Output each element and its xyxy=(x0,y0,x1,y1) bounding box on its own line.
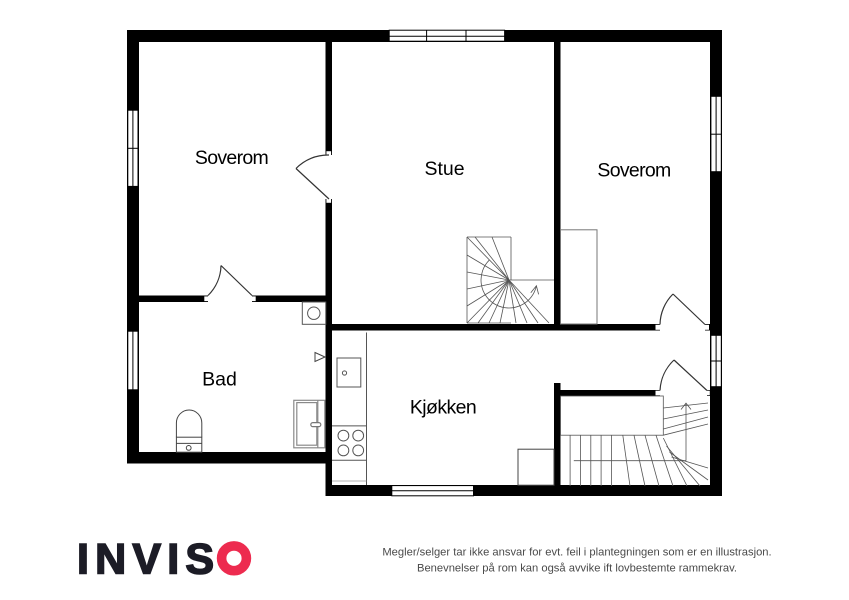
svg-text:Benevnelser på rom kan også av: Benevnelser på rom kan også avvike ift l… xyxy=(417,563,737,575)
svg-text:Bad: Bad xyxy=(202,369,237,391)
svg-text:Stue: Stue xyxy=(424,158,464,180)
svg-text:Megler/selger tar ikke ansvar: Megler/selger tar ikke ansvar for evt. f… xyxy=(382,547,771,559)
svg-text:Soverom: Soverom xyxy=(195,147,268,169)
svg-text:Kjøkken: Kjøkken xyxy=(410,397,476,419)
svg-text:Soverom: Soverom xyxy=(597,160,670,182)
svg-text:INVIS: INVIS xyxy=(77,536,220,584)
